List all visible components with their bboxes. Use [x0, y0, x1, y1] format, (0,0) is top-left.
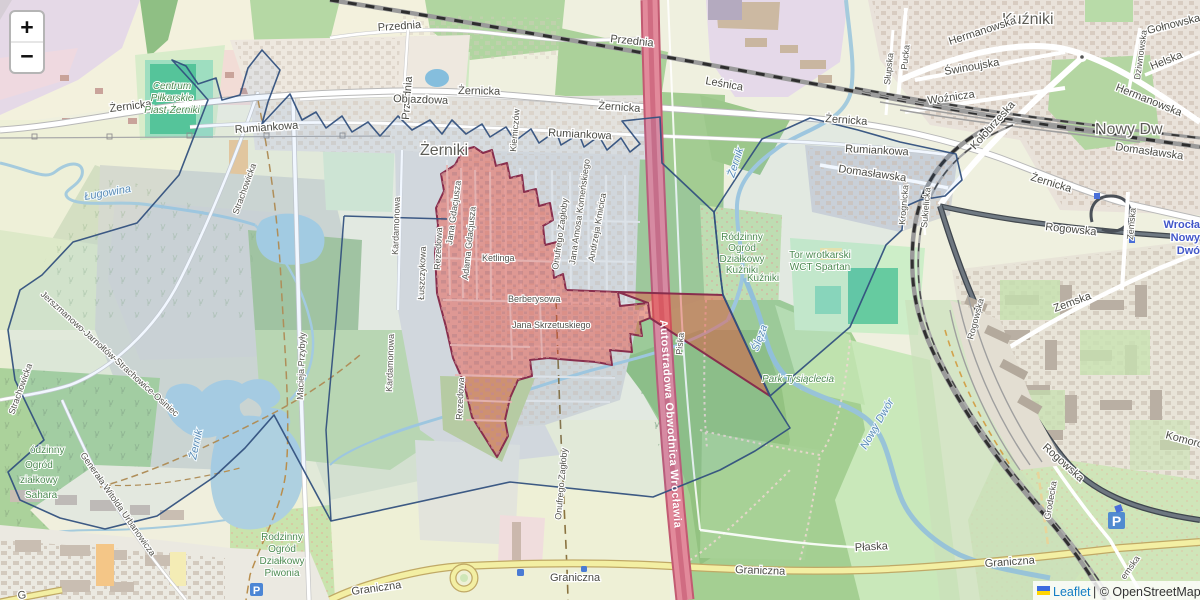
svg-text:Ródzinny: Ródzinny — [721, 232, 763, 243]
svg-text:| © OpenStreetMap: | © OpenStreetMap — [1093, 585, 1200, 599]
svg-text:Działkowy: Działkowy — [719, 254, 764, 265]
svg-text:Płaska: Płaska — [855, 540, 889, 554]
svg-text:Działkowy: Działkowy — [259, 556, 304, 567]
svg-text:Wrocła: Wrocła — [1164, 219, 1200, 231]
svg-text:Piwonia: Piwonia — [264, 568, 299, 579]
svg-text:Kardamonowa: Kardamonowa — [390, 197, 402, 255]
svg-text:Ketlinga: Ketlinga — [482, 253, 515, 263]
svg-text:Park Tysiąclecia: Park Tysiąclecia — [762, 374, 834, 385]
svg-text:P: P — [1112, 513, 1121, 529]
svg-text:Kuźniki: Kuźniki — [747, 273, 779, 284]
svg-text:Ogród: Ogród — [25, 460, 53, 471]
svg-text:Piast-Żerniki: Piast-Żerniki — [144, 104, 200, 116]
svg-text:Rodzinny: Rodzinny — [261, 532, 303, 543]
svg-text:Tor wrotkarski: Tor wrotkarski — [789, 250, 851, 261]
svg-text:Ogród: Ogród — [268, 544, 296, 555]
svg-text:Jana Skrzetuskiego: Jana Skrzetuskiego — [512, 320, 591, 330]
svg-text:Berberysowa: Berberysowa — [508, 294, 561, 304]
svg-text:ódzinny: ódzinny — [30, 445, 64, 456]
svg-text:Kardamonowa: Kardamonowa — [384, 334, 396, 392]
svg-text:Żerniki: Żerniki — [420, 140, 468, 159]
svg-text:Żernicka: Żernicka — [458, 84, 501, 98]
svg-text:Centrum: Centrum — [153, 81, 191, 92]
svg-text:Objazdowa: Objazdowa — [393, 93, 449, 107]
svg-text:Sahara: Sahara — [25, 490, 58, 501]
svg-text:P: P — [253, 585, 260, 597]
svg-text:+: + — [20, 14, 33, 40]
svg-text:Łuszczykowa: Łuszczykowa — [416, 246, 428, 300]
svg-text:Piłkarskie: Piłkarskie — [151, 93, 194, 104]
svg-text:WCT Spartan: WCT Spartan — [790, 262, 850, 273]
svg-text:Ogród: Ogród — [728, 243, 756, 254]
svg-text:Piska: Piska — [674, 332, 686, 355]
svg-text:Dwó: Dwó — [1177, 245, 1200, 257]
svg-text:Graniczna: Graniczna — [735, 564, 786, 578]
svg-text:Leaflet: Leaflet — [1053, 585, 1091, 599]
svg-text:−: − — [20, 43, 33, 69]
svg-text:G: G — [17, 589, 27, 600]
svg-text:Nowy Dw: Nowy Dw — [1095, 121, 1163, 138]
svg-text:Graniczna: Graniczna — [550, 572, 601, 584]
svg-text:Nowy: Nowy — [1171, 232, 1200, 244]
svg-text:ziałkowy: ziałkowy — [20, 475, 58, 486]
